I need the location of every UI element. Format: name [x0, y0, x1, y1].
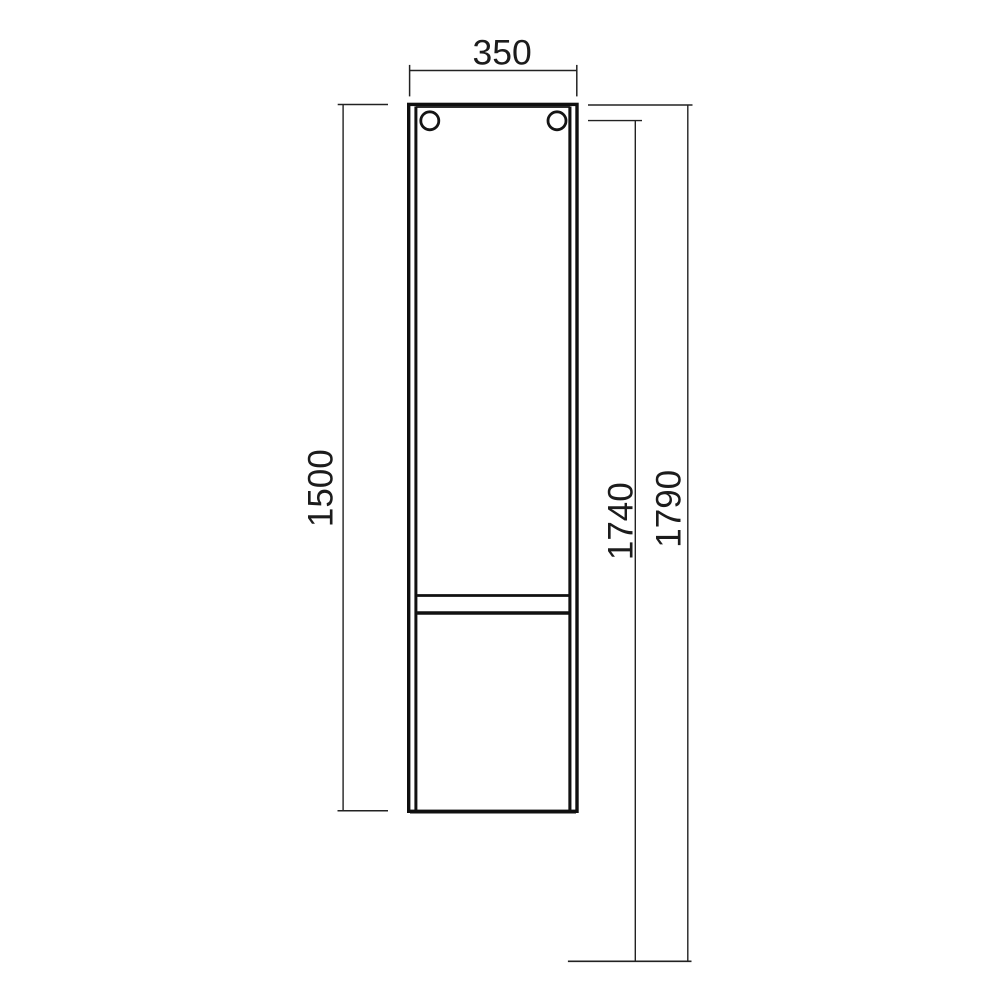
svg-text:1500: 1500	[301, 449, 340, 527]
svg-text:350: 350	[472, 33, 531, 73]
svg-text:1740: 1740	[602, 482, 641, 560]
svg-text:1790: 1790	[650, 470, 689, 548]
